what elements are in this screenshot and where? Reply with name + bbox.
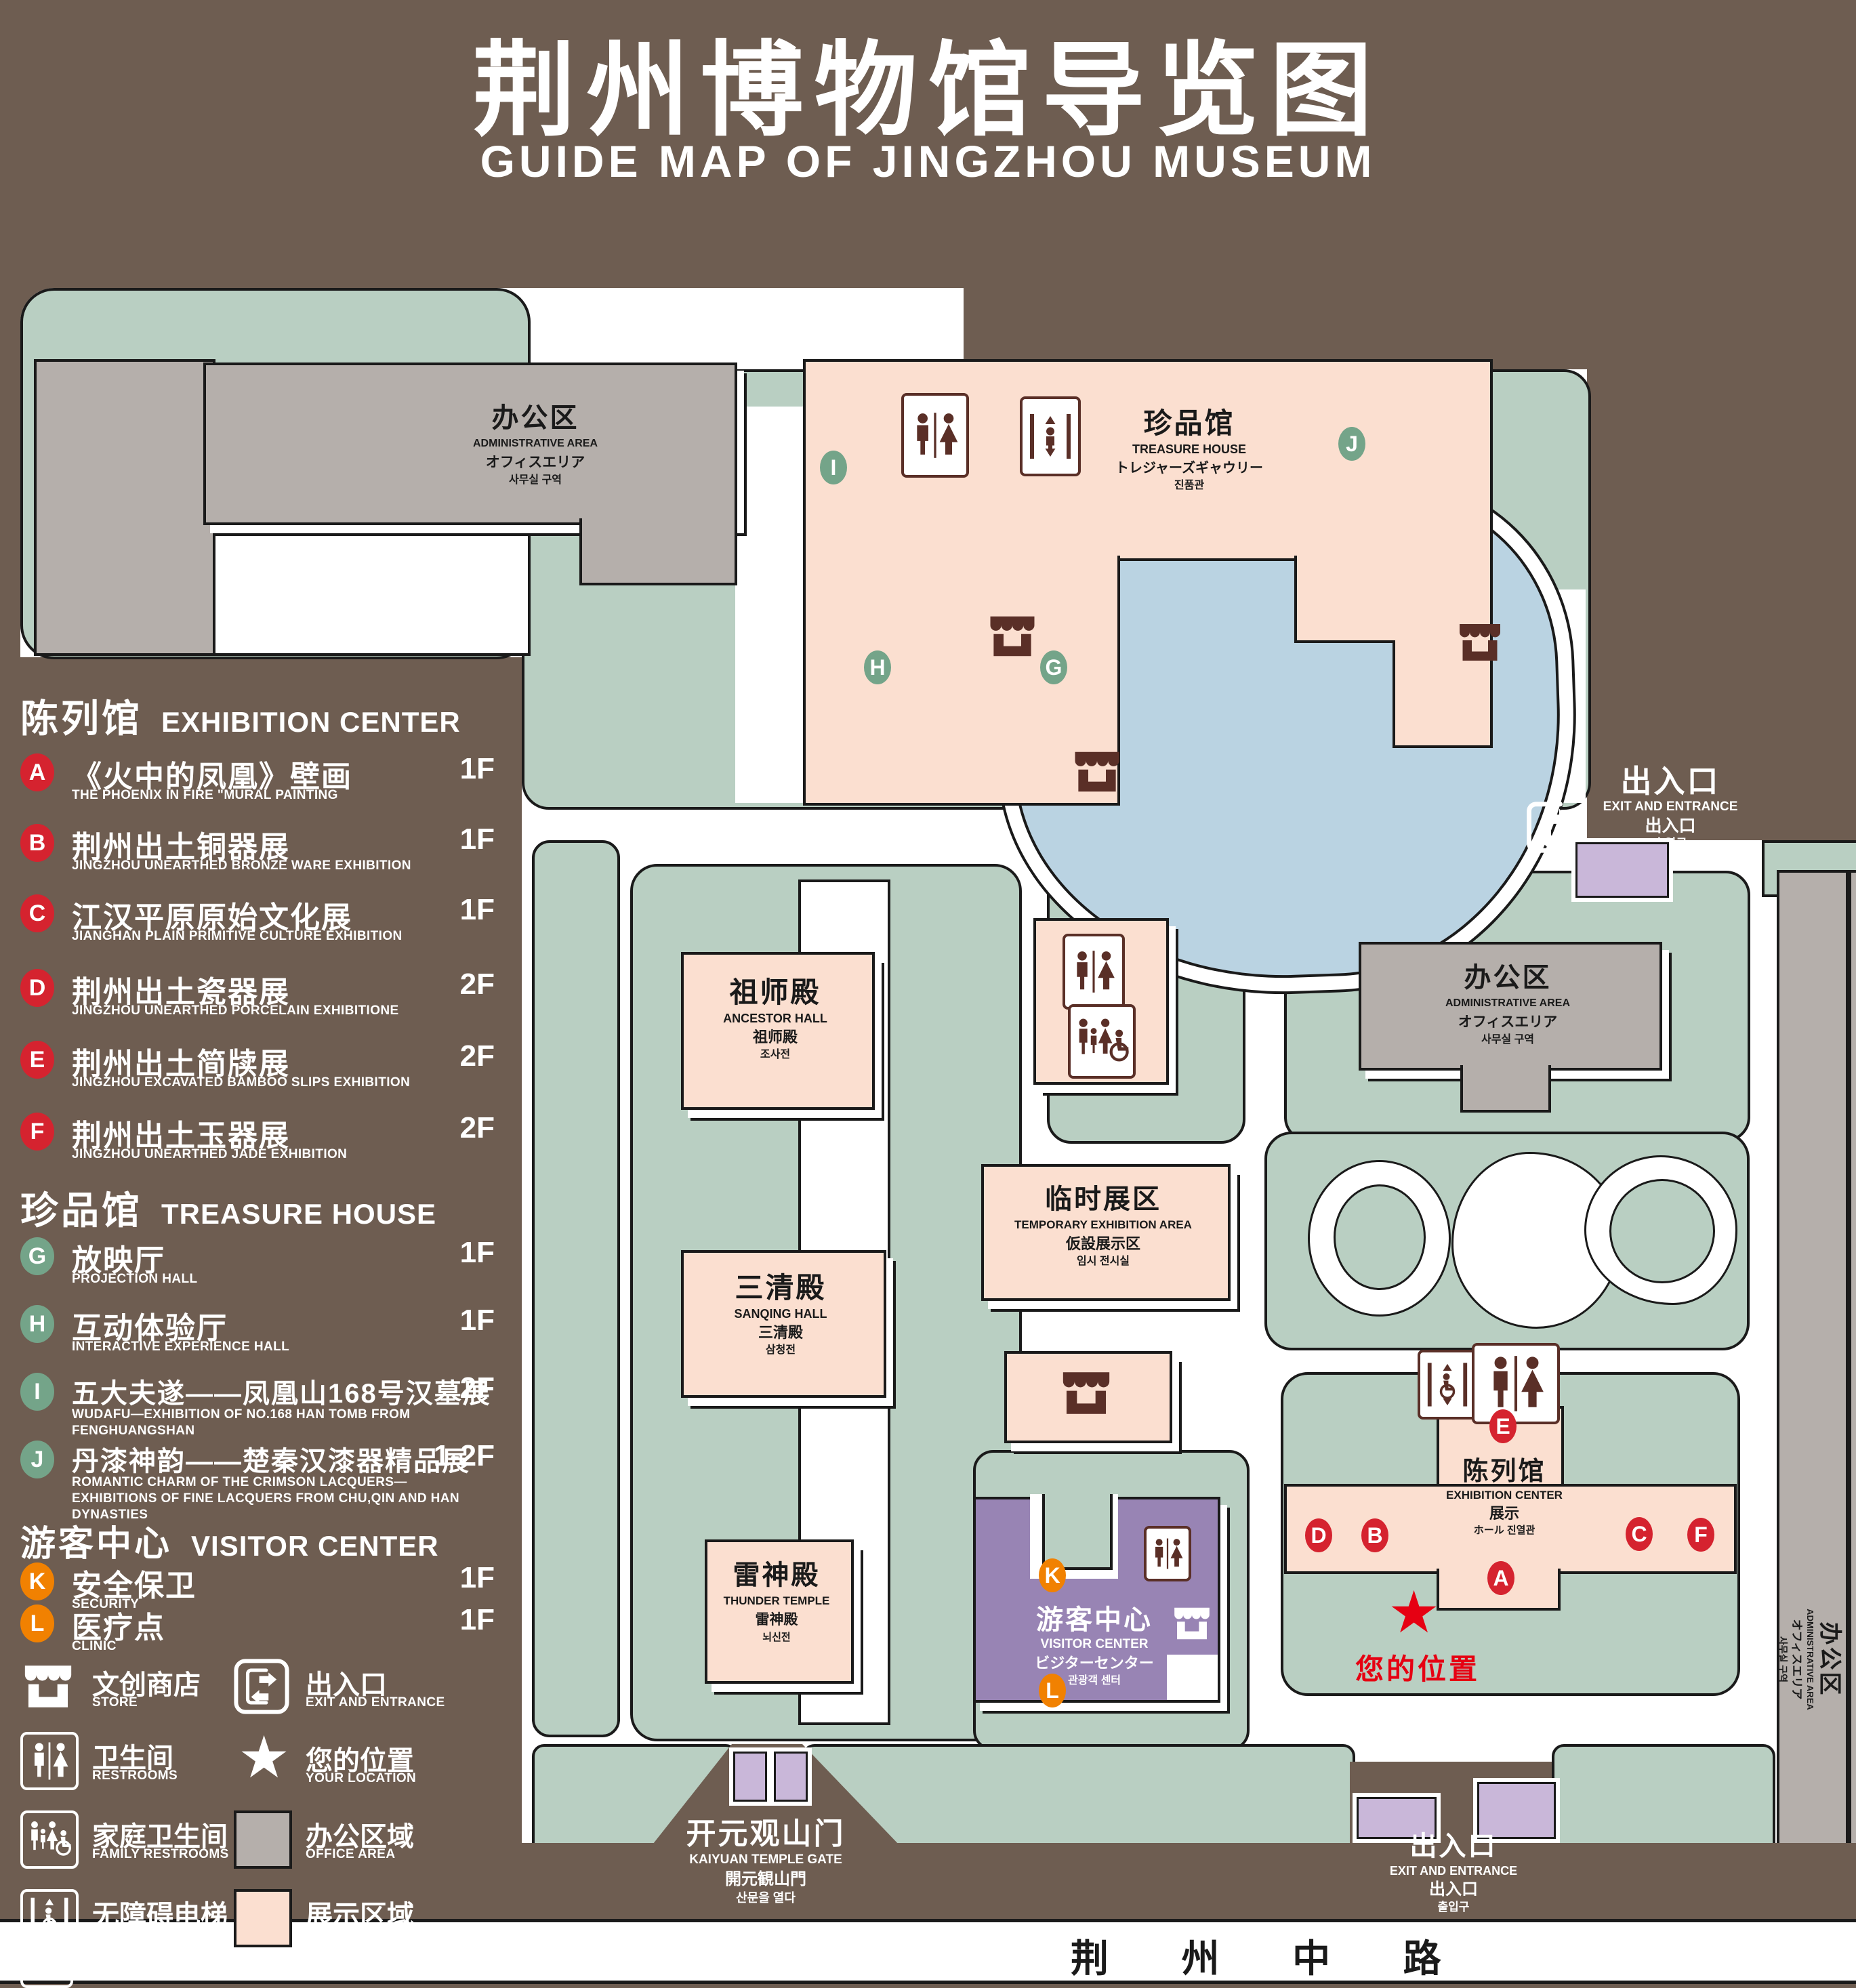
sanqing-hall-label: 三清殿 SANQING HALL 三清殿 삼청전 [693, 1271, 869, 1358]
badge-d: D [20, 969, 54, 1007]
admin-right-label: 办公区 ADMINISTRATIVE AREA オフィスエリア 사무실 구역 [1372, 961, 1643, 1048]
admin-top-building-tab [579, 518, 737, 585]
restrooms-icon [20, 1732, 79, 1790]
exhibition-center-label: 陈列馆 EXHIBITION CENTER 展示 ホール 진열관 [1369, 1457, 1640, 1538]
page-subtitle: GUIDE MAP OF JINGZHOU MUSEUM [0, 136, 1856, 187]
store-icon [1071, 745, 1123, 798]
badge-l: L [20, 1604, 54, 1642]
badge-b: B [20, 824, 54, 862]
family-restrooms-icon [20, 1810, 79, 1869]
store-icon [1171, 1596, 1213, 1651]
store-icon [20, 1659, 76, 1714]
garden-island-right [1609, 1179, 1715, 1283]
kaiyuan-gate-label: 开元观山门 KAIYUAN TEMPLE GATE 開元観山門 산문을 열다 [630, 1817, 901, 1905]
map-marker-h: H [864, 650, 891, 684]
map-marker-g: G [1040, 650, 1067, 684]
admin-strip-sliver [1849, 870, 1856, 1866]
your-location-label: 您的位置 [1355, 1647, 1480, 1688]
admin-right-building-tab [1460, 1065, 1551, 1113]
legend-symbol-store: 文创商店STORE [20, 1659, 257, 1726]
restrooms-icon [1144, 1526, 1191, 1581]
office-swatch [234, 1810, 289, 1866]
badge-c: C [20, 894, 54, 932]
map-marker-d: D [1305, 1518, 1332, 1552]
legend-header-exhibition: 陈列馆EXHIBITION CENTER [20, 688, 508, 743]
elevator-icon [20, 1935, 73, 1988]
badge-h: H [20, 1305, 54, 1343]
exit-top-building [1575, 842, 1669, 898]
elevator-icon [1020, 396, 1081, 476]
admin-top-label: 办公区 ADMINISTRATIVE AREA オフィスエリア 사무실 구역 [400, 401, 671, 488]
legend-symbol-exit: 出入口EXIT AND ENTRANCE [234, 1659, 478, 1726]
badge-g: G [20, 1237, 54, 1275]
display-swatch [234, 1889, 289, 1945]
restrooms-icon [901, 393, 969, 478]
exit-bottom-label: 出入口 EXIT AND ENTRANCE 出入口 출입구 [1369, 1831, 1538, 1915]
exit-top-label: 出入口 EXIT AND ENTRANCE 出入口 출입구 [1586, 764, 1755, 851]
admin-strip-label: 办公区 ADMINISTRATIVE AREA オフィスエリア 사무실 구역 [1777, 1565, 1843, 1754]
family-restrooms-icon [1068, 1004, 1136, 1079]
exit-icon [1523, 800, 1579, 855]
location-star-icon: ★ [1388, 1586, 1440, 1640]
store-icon [1058, 1363, 1114, 1423]
legend-symbol-your-location: ★ 您的位置YOUR LOCATION [234, 1735, 478, 1802]
map-marker-j: J [1338, 427, 1365, 461]
treasure-house-label: 珍品馆 TREASURE HOUSE トレジャーズギャウリー 진품관 [1054, 407, 1325, 493]
map-marker-i: I [820, 451, 847, 484]
store-icon [1456, 618, 1504, 667]
admin-top-building-left [34, 359, 215, 656]
restrooms-icon [1063, 934, 1125, 1010]
temporary-exhibition-label: 临时展区 TEMPORARY EXHIBITION AREA 仮設展示区 임시 … [981, 1182, 1225, 1269]
map-marker-l: L [1039, 1674, 1066, 1707]
legend-symbol-restrooms: 卫生间RESTROOMS [20, 1732, 257, 1800]
map-marker-f: F [1687, 1518, 1714, 1552]
badge-k: K [20, 1562, 54, 1600]
badge-e: E [20, 1041, 54, 1079]
green-left-strip [532, 840, 620, 1737]
garden-island-left [1334, 1184, 1426, 1290]
gate-pillar-left [733, 1752, 767, 1802]
legend-symbol-office-area: 办公区域OFFICE AREA [234, 1810, 478, 1878]
map-marker-a: A [1487, 1561, 1514, 1595]
map-marker-b: B [1361, 1518, 1388, 1552]
map-marker-e: E [1489, 1409, 1517, 1443]
badge-f: F [20, 1113, 54, 1151]
badge-i: I [20, 1373, 54, 1411]
map-marker-k: K [1039, 1558, 1066, 1592]
badge-a: A [20, 753, 54, 791]
ancestor-hall-label: 祖师殿 ANCESTOR HALL 祖师殿 조사전 [687, 976, 863, 1062]
accessible-elevator-icon [1418, 1350, 1477, 1420]
restrooms-icon [1472, 1343, 1560, 1424]
legend-header-visitor: 游客中心VISITOR CENTER [20, 1515, 508, 1566]
page-title: 荆州博物馆导览图 [0, 7, 1856, 156]
visitor-center-label: 游客中心 VISITOR CENTER ビジターセンター 관광객 센터 [986, 1604, 1203, 1689]
legend-symbol-family-restrooms: 家庭卫生间FAMILY RESTROOMS [20, 1810, 264, 1878]
badge-j: J [20, 1441, 54, 1478]
store-icon [986, 610, 1039, 663]
thunder-temple-label: 雷神殿 THUNDER TEMPLE 雷神殿 뇌신전 [688, 1558, 865, 1645]
legend-symbol-display-area: 展示区域DISPLAY AREA [234, 1889, 478, 1957]
legend-header-treasure: 珍品馆TREASURE HOUSE [20, 1180, 508, 1235]
legend-symbol-elevator: 电梯Elevator [20, 1935, 264, 1984]
map-marker-c: C [1626, 1517, 1653, 1551]
exit-icon [234, 1659, 289, 1714]
gate-pillar-right [774, 1752, 808, 1802]
location-star-icon: ★ [238, 1731, 290, 1785]
road-label: 荆 州 中 路 [1071, 1928, 1472, 1983]
